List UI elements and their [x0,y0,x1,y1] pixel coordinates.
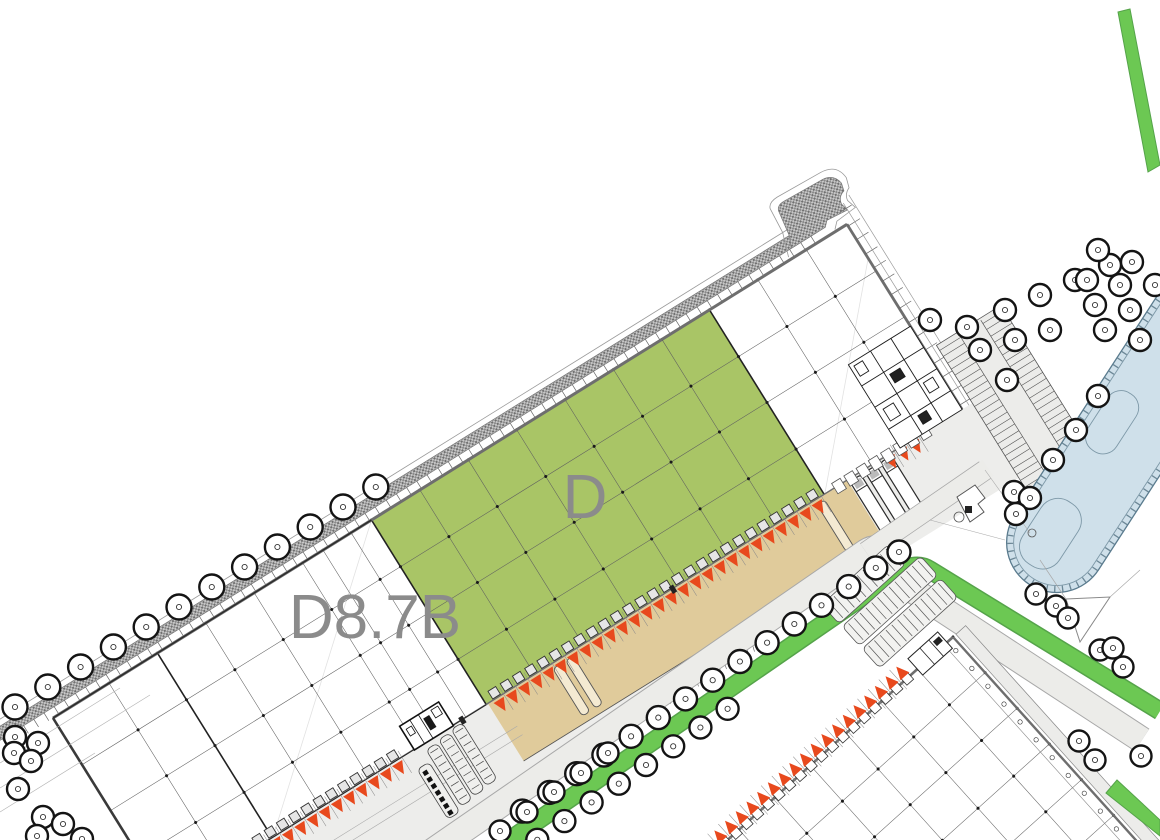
svg-text:D: D [563,463,608,532]
svg-text:D8.7B: D8.7B [289,583,461,652]
